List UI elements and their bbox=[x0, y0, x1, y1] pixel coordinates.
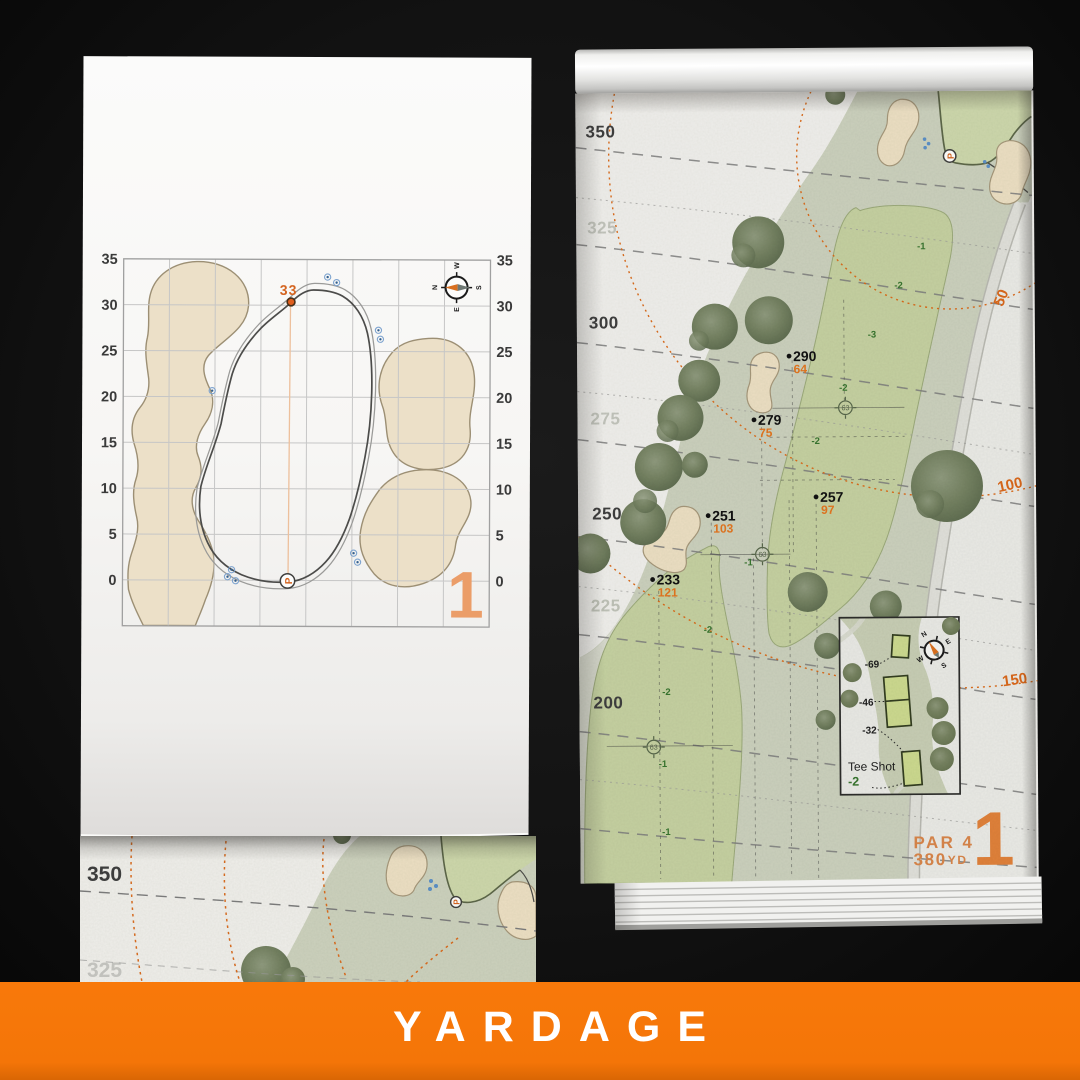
svg-text:15: 15 bbox=[496, 437, 512, 453]
svg-text:0: 0 bbox=[108, 573, 116, 589]
svg-text:20: 20 bbox=[101, 389, 117, 405]
svg-text:S: S bbox=[476, 285, 483, 290]
svg-text:30: 30 bbox=[497, 299, 513, 315]
svg-text:P: P bbox=[284, 577, 295, 584]
svg-text:5: 5 bbox=[109, 527, 117, 543]
svg-text:35: 35 bbox=[497, 253, 513, 269]
svg-text:E: E bbox=[454, 307, 461, 312]
svg-text:10: 10 bbox=[101, 481, 117, 497]
svg-text:33: 33 bbox=[280, 282, 298, 298]
svg-text:W: W bbox=[454, 262, 461, 269]
svg-text:YARDAGE: YARDAGE bbox=[393, 1003, 723, 1051]
svg-text:25: 25 bbox=[101, 344, 117, 360]
svg-text:15: 15 bbox=[101, 435, 117, 451]
svg-text:1: 1 bbox=[447, 558, 484, 632]
svg-text:30: 30 bbox=[101, 298, 117, 314]
svg-text:35: 35 bbox=[102, 252, 118, 268]
svg-text:25: 25 bbox=[496, 345, 512, 361]
svg-text:0: 0 bbox=[495, 574, 503, 590]
svg-text:10: 10 bbox=[496, 483, 512, 499]
svg-text:N: N bbox=[432, 285, 439, 290]
svg-text:5: 5 bbox=[496, 528, 504, 544]
svg-text:20: 20 bbox=[496, 391, 512, 407]
